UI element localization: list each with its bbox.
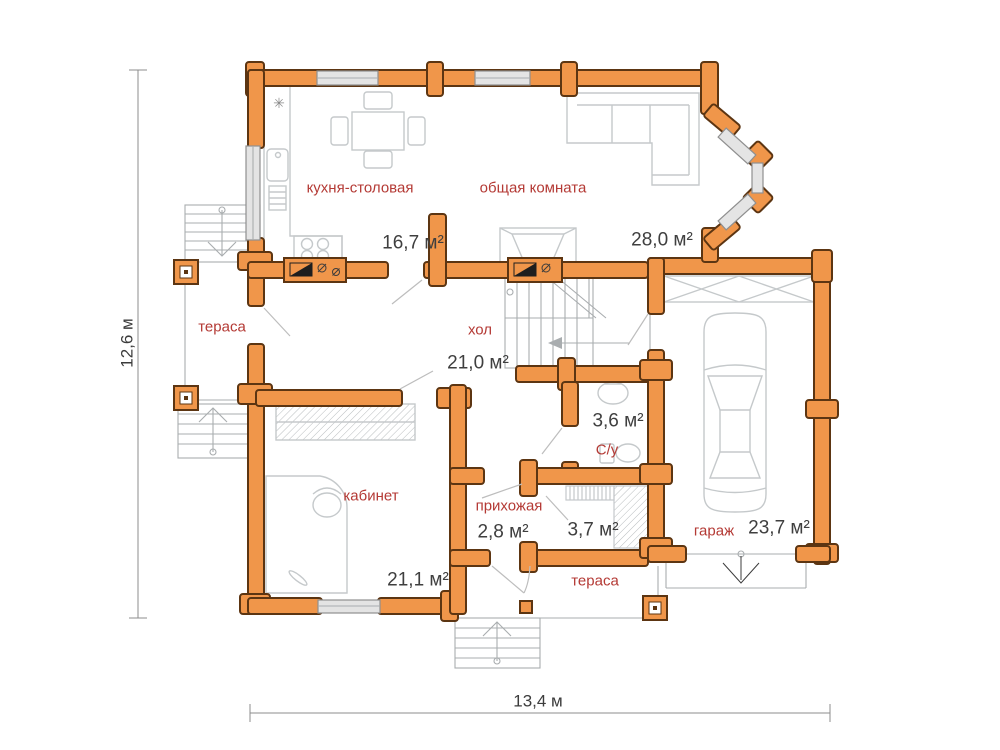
room-area-hall: 21,0 м² <box>447 354 509 373</box>
terrace-column <box>174 386 198 410</box>
floor-plan: ✳ <box>0 0 1000 750</box>
terrace-left-stairs-lower <box>178 404 248 458</box>
kitchen-sink <box>267 149 288 210</box>
room-label-hall: хол <box>468 323 492 338</box>
room-label-garage: гараж <box>694 524 734 539</box>
terrace-column <box>174 260 198 284</box>
entry-stairs <box>455 618 540 668</box>
furniture-sofa <box>567 93 699 185</box>
fireplace <box>500 228 576 262</box>
chimney-block <box>508 258 562 282</box>
furniture-kitchen: ✳ <box>264 86 342 262</box>
dimension-height: 12,6 м <box>119 318 136 368</box>
bathroom-sink <box>598 382 628 404</box>
terrace-bottom-structure <box>455 566 658 668</box>
room-label-wc: С/у <box>596 443 619 458</box>
garage-workbench <box>664 276 814 302</box>
room-area-wc: 3,6 м² <box>592 412 643 431</box>
chimney-block <box>284 258 346 282</box>
room-label-kitchen: кухня-столовая <box>307 181 414 196</box>
room-area-garage: 23,7 м² <box>748 519 810 538</box>
hall-stairs <box>505 278 650 368</box>
room-label-terrace-left: тераса <box>198 320 246 335</box>
floor-plan-drawing: ✳ <box>0 0 1000 750</box>
room-label-entry: прихожая <box>476 499 543 514</box>
room-area-living: 28,0 м² <box>631 231 693 250</box>
room-label-terrace-bottom: тераса <box>571 574 619 589</box>
car <box>704 313 766 512</box>
room-label-office: кабинет <box>343 489 398 504</box>
office-wardrobe <box>276 404 415 440</box>
room-label-living: общая комната <box>480 181 587 196</box>
room-area-kitchen: 16,7 м² <box>382 234 444 253</box>
office-desk <box>266 476 347 593</box>
room-area-closet: 3,7 м² <box>567 521 618 540</box>
porch-column <box>643 596 667 620</box>
room-area-office: 21,1 м² <box>387 571 449 590</box>
dimension-width: 13,4 м <box>513 693 563 710</box>
room-area-entry: 2,8 м² <box>477 523 528 542</box>
furniture-dining-table <box>331 92 425 168</box>
snowflake-icon: ✳ <box>273 95 285 111</box>
dimension-lines <box>129 70 830 722</box>
garage-door-arrow-icon <box>723 556 759 583</box>
